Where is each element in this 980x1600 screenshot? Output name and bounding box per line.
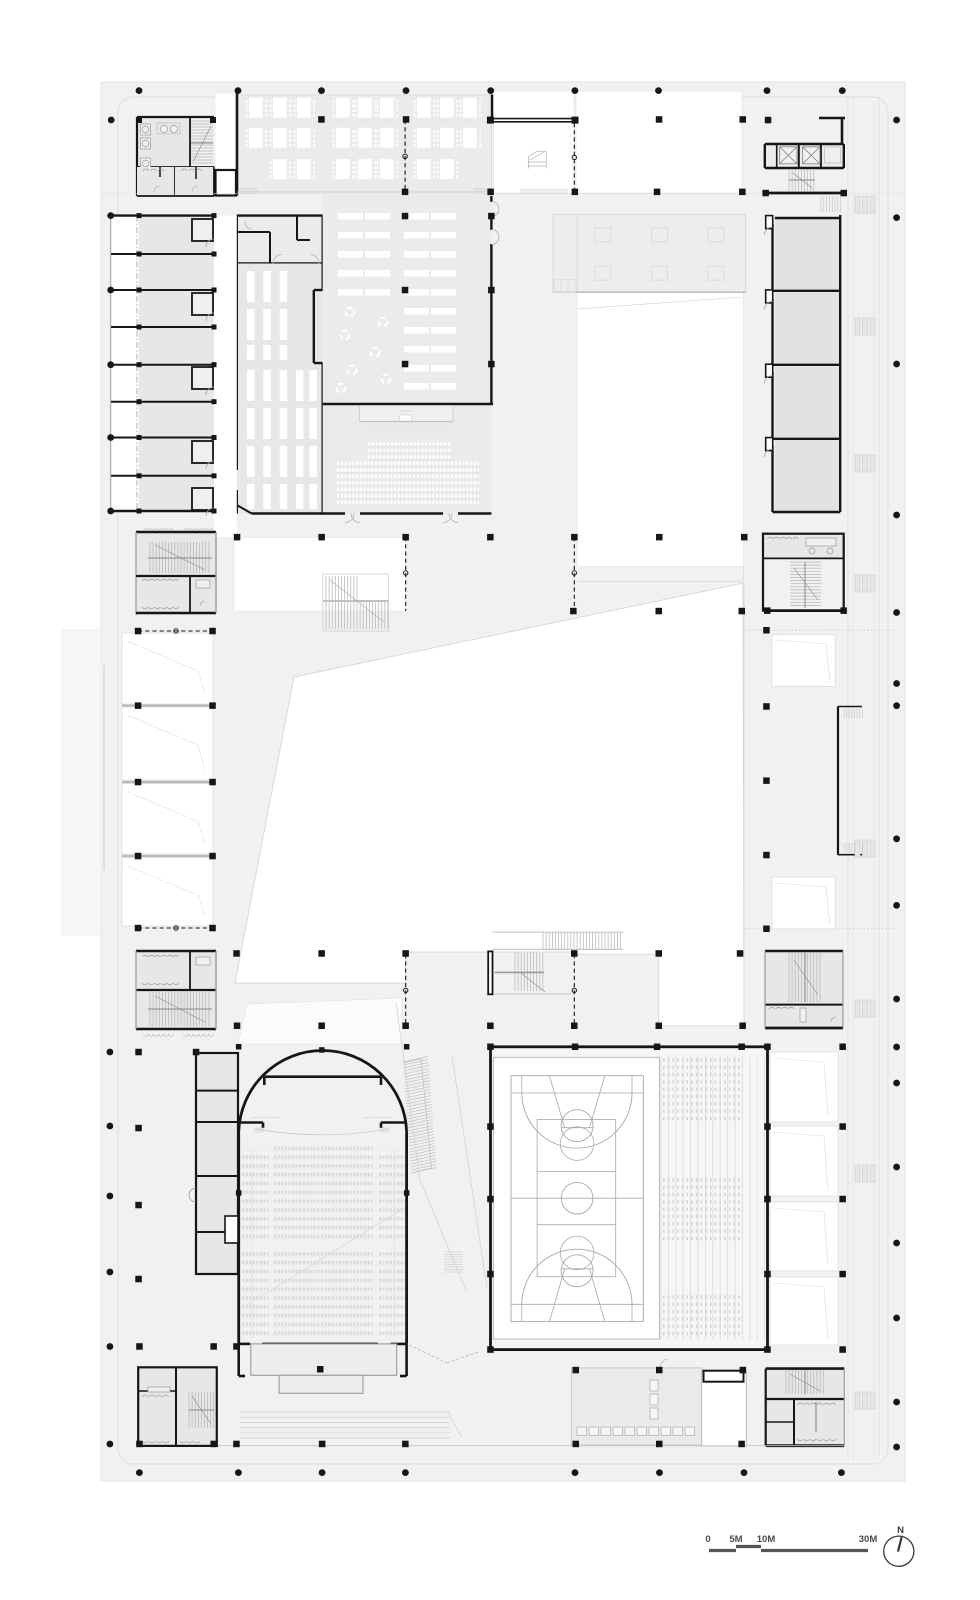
svg-text:0: 0 [705,1534,710,1545]
svg-text:10M: 10M [757,1534,776,1545]
svg-text:5M: 5M [729,1534,742,1545]
svg-text:30M: 30M [859,1534,878,1545]
svg-text:N: N [897,1525,904,1536]
